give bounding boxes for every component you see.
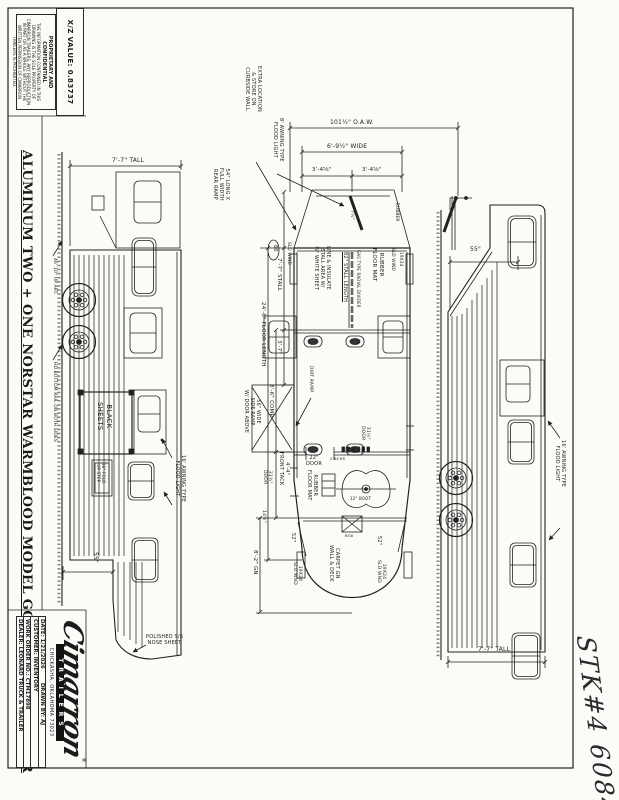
table-row-customer: CUSTOMER: INVENTORY [31,617,38,767]
logo-block: Cimarron® TRAILERS CHICKASHA, OKLAHOMA 7… [46,616,86,768]
dim-8-6-comp: 8'-6" COMP [267,384,274,417]
sheet-title: ALUMINUM TWO + ONE NORSTAR WARMBLOOD MOD… [14,150,40,632]
dim-31-14-door: 31¼" DOOR [359,426,370,440]
label-rubber-floor-mat-tack: RUBBER FLOOR MAT [306,470,318,501]
proprietary-box: PROPRIETARY AND CONFIDENTIAL THE INFORMA… [16,14,56,110]
label-fold-up-step: 36" FOLD UP STEP [95,463,105,484]
label-awning-8: 8' AWNING TYPE FLOOD LIGHT [272,118,284,162]
dim-52-right: 52" [376,536,382,545]
label-up-art: 46' 10" UP ART. [52,258,57,295]
label-19x34-right: 19X34 [399,252,404,267]
label-12-boot: 12" BOOT [350,497,371,502]
logo-address: CHICKASHA, OKLAHOMA 73023 [48,616,54,768]
saddle-rack-symbol [336,471,396,508]
label-rubber-floor-mat-stall: RUBBER FLOOR MAT [371,248,384,282]
xz-value-box: X/Z VALUE: 0.83737 [56,8,84,116]
label-radial-divider: GAS TYPE RADIAL DIVIDER [355,250,360,308]
proprietary-heading: PROPRIETARY AND CONFIDENTIAL [41,18,53,106]
dim-3-7: 3'-7" [275,340,282,354]
balloon-60: 60 [272,245,278,252]
table-row-date: DATE: 1/21/2026 DRAWN BY: AJ [38,617,45,767]
drawn-by-value: DRAWN BY: AJ [39,683,45,725]
dim-22-door: 22" DOOR [306,455,322,467]
view-side-left [53,152,183,659]
label-dirt-ramp: DIRT RAMP [308,366,313,392]
label-sld-wind-left: SLD WIND [287,242,292,265]
dim-7-7-tall-right: 7'-7" TALL [478,646,510,653]
label-extra-location: EXTRA LOCATION & STORE ON CURBSIDE WALL [244,66,262,112]
sheet-frame [8,8,573,768]
view-floor-plan [252,122,460,614]
dim-55-right: 55" [470,246,481,253]
label-19x24-right: 19X24 SLD WND [375,560,386,583]
label-box: BOX [345,534,354,539]
dim-8-2-gn: 8'-2" GN [251,550,258,575]
dim-7-7-tall-left: 7'-7" TALL [112,157,144,164]
dim-3-4-right: 3'-4⅝" [362,167,382,174]
dim-oaw: 101½" O.A.W. [330,119,374,126]
xz-value-text: X/Z VALUE: 0.83737 [66,20,74,105]
dim-7-7-stall: 7'-7" STALL [275,258,282,291]
label-carpet-gn: CARPET GN WALL & DECK [328,545,340,582]
blueprint-sheet: X/Z VALUE: 0.83737 PROPRIETARY AND CONFI… [0,0,619,800]
dim-82-stall-length: 82" STALL LENGTH [342,252,348,302]
table-row-work-order: WORK ORDER NO.: CTM17898 [23,617,30,767]
dim-31-34-door: 31¾" DOOR [261,470,272,484]
drawing-linework [0,0,619,800]
label-2-bchs: 2 BCHS [330,457,345,462]
label-rear-ramp: 54" LONG X FULL WIDTH REAR RAMP [212,168,230,201]
date-value: DATE: 1/21/2026 [39,619,45,669]
dim-7-half: 7½" [349,210,354,220]
label-polished-nose-sheet: POLISHED S/S NOSE SHEET [146,634,183,646]
label-hd-bottom-rail: HD BOTTOM RAIL ON BOTH SIDES [52,362,57,442]
cimarron-logo-script: Cimarron [59,617,86,762]
dim-3-4-left: 3'-4⅝" [312,167,332,174]
dim-55-left: 55" [92,552,99,563]
cimarron-logo: Cimarron® TRAILERS [56,616,86,768]
label-rubber-ramp: RUBBER [395,203,400,221]
title-block-table: DATE: 1/21/2026 DRAWN BY: AJ CUSTOMER: I… [16,616,46,768]
label-side-ramp: 56" WIDE SIDE RAMP W/ DOOR ABOVE [242,390,260,433]
label-sld-wind-right: SLD WIND [391,248,396,271]
label-awning-16-right: 16' AWNING TYPE FLOOD LIGHT [554,440,566,487]
dim-24-6-floor: 24'-6" FLOOR LENGTH [259,302,266,367]
dim-wide: 6'-9½" WIDE [327,143,367,150]
dim-4-4-front-tack: 4'-4" FRONT TACK [278,452,290,485]
dim-52-left: 52" [290,533,296,542]
label-black-sheets: BLACK SHEETS [96,402,113,430]
label-19x24-left: 19X24 SLD WND [291,562,302,585]
view-side-right [438,197,560,680]
proprietary-body: THE INFORMATION CONTAINED IN THIS DRAWIN… [11,18,40,106]
label-awning-16-left: 16' AWNING TYPE FLOOD LIGHT [174,455,186,502]
wheels-right-view [440,462,473,537]
dim-14-34: 14¾" [261,510,266,523]
table-row-dealer: DEALER: LEONARD TRUCK & TRAILER [17,617,23,767]
label-line-insulate: LINE & INSULATE STALL AREA W/ ⅜" WHITE S… [312,246,330,290]
